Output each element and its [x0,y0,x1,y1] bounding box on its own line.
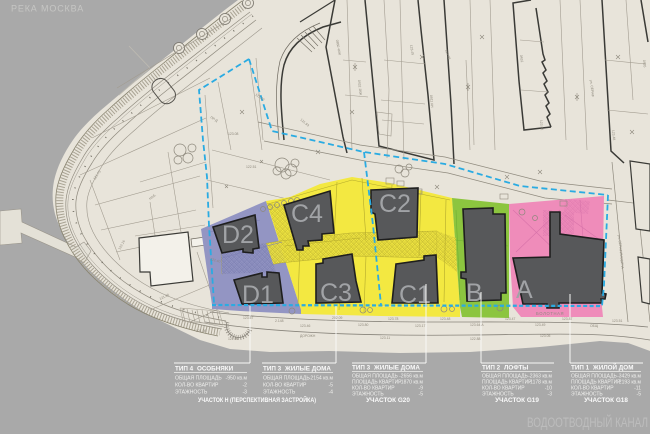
svg-text:D2: D2 [222,221,254,249]
svg-text:ЖИЛЫЕ ДОМА: ЖИЛЫЕ ДОМА [373,365,420,372]
svg-text:2.148: 2.148 [275,319,284,323]
svg-text:123.78: 123.78 [388,317,398,321]
svg-text:123.80: 123.80 [358,323,368,327]
svg-text:123.17: 123.17 [415,324,425,328]
svg-text:-3: -3 [548,392,553,398]
svg-text:123.64 А: 123.64 А [470,323,484,327]
svg-text:122.06: 122.06 [228,337,238,341]
svg-text:A: A [516,276,533,304]
svg-text:ТИП 3: ТИП 3 [352,365,371,372]
svg-text:-950 кв.м: -950 кв.м [226,376,248,382]
svg-text:0455: 0455 [642,60,647,68]
svg-text:123.05: 123.05 [540,334,550,338]
svg-text:ЖИЛОЙ ДОМ: ЖИЛОЙ ДОМ [592,363,633,372]
svg-text:C3: C3 [320,279,352,307]
svg-text:ОСОБНЯКИ: ОСОБНЯКИ [197,366,234,373]
svg-text:-5: -5 [637,392,642,398]
svg-text:КОЛ-ВО КВАРТИР: КОЛ-ВО КВАРТИР [263,383,307,389]
svg-text:ОБЩАЯ ПЛОЩАДЬ: ОБЩАЯ ПЛОЩАДЬ [263,376,310,382]
svg-text:123.87: 123.87 [562,317,572,321]
svg-text:ЭТАЖНОСТЬ: ЭТАЖНОСТЬ [175,390,208,396]
svg-text:УЧАСТОК G20: УЧАСТОК G20 [366,397,410,404]
svg-text:202.09: 202.09 [332,316,342,320]
svg-text:УЧАСТОК G18: УЧАСТОК G18 [584,397,628,404]
svg-text:123.48: 123.48 [440,317,450,321]
svg-text:123.49: 123.49 [535,323,545,327]
svg-text:ЭТАЖНОСТЬ: ЭТАЖНОСТЬ [263,390,296,396]
svg-text:121.98: 121.98 [196,329,206,333]
svg-text:ТИП 2: ТИП 2 [482,365,501,372]
svg-text:-4: -4 [328,390,333,396]
svg-text:РЕКА МОСКВА: РЕКА МОСКВА [11,4,84,14]
svg-text:ТИП 3: ТИП 3 [263,366,282,373]
svg-text:ОБЩАЯ ПЛОЩАДЬ: ОБЩАЯ ПЛОЩАДЬ [175,376,222,382]
svg-text:БОЛОТНАЯ: БОЛОТНАЯ [536,311,564,316]
svg-text:ОБЩ: ОБЩ [590,324,599,328]
svg-text:-2154 кв.м: -2154 кв.м [309,376,334,382]
svg-text:C4: C4 [291,200,323,228]
svg-text:ВОДООТВОДНЫЙ КАНАЛ: ВОДООТВОДНЫЙ КАНАЛ [527,415,648,430]
svg-text:122.51: 122.51 [246,165,256,169]
svg-text:КОЛ-ВО КВАРТИР: КОЛ-ВО КВАРТИР [175,383,219,389]
svg-text:123.08: 123.08 [228,132,238,136]
svg-text:C2: C2 [379,190,411,218]
svg-text:123.46: 123.46 [300,324,310,328]
svg-text:УЧАСТОК G19: УЧАСТОК G19 [495,397,539,404]
svg-text:ТИП 1: ТИП 1 [571,365,590,372]
svg-text:123.47: 123.47 [505,317,515,321]
svg-text:ТИП 4: ТИП 4 [175,366,194,373]
svg-text:123.57: 123.57 [243,316,253,320]
svg-text:ДОРОЖН: ДОРОЖН [300,334,316,338]
svg-text:ЖИЛЫЕ ДОМА: ЖИЛЫЕ ДОМА [284,366,331,373]
svg-text:-5: -5 [419,392,424,398]
svg-text:-2: -2 [242,383,247,389]
svg-text:УЧАСТОК Н (ПЕРСПЕКТИВНАЯ ЗАСТР: УЧАСТОК Н (ПЕРСПЕКТИВНАЯ ЗАСТРОЙКА) [198,396,316,404]
svg-text:B: B [466,279,483,307]
svg-text:-3: -3 [242,390,247,396]
svg-text:123.51: 123.51 [612,319,622,323]
svg-text:ЛОФТЫ: ЛОФТЫ [504,365,528,372]
svg-text:-5: -5 [328,383,333,389]
svg-text:122.88: 122.88 [470,337,480,341]
svg-text:123.11: 123.11 [380,336,390,340]
